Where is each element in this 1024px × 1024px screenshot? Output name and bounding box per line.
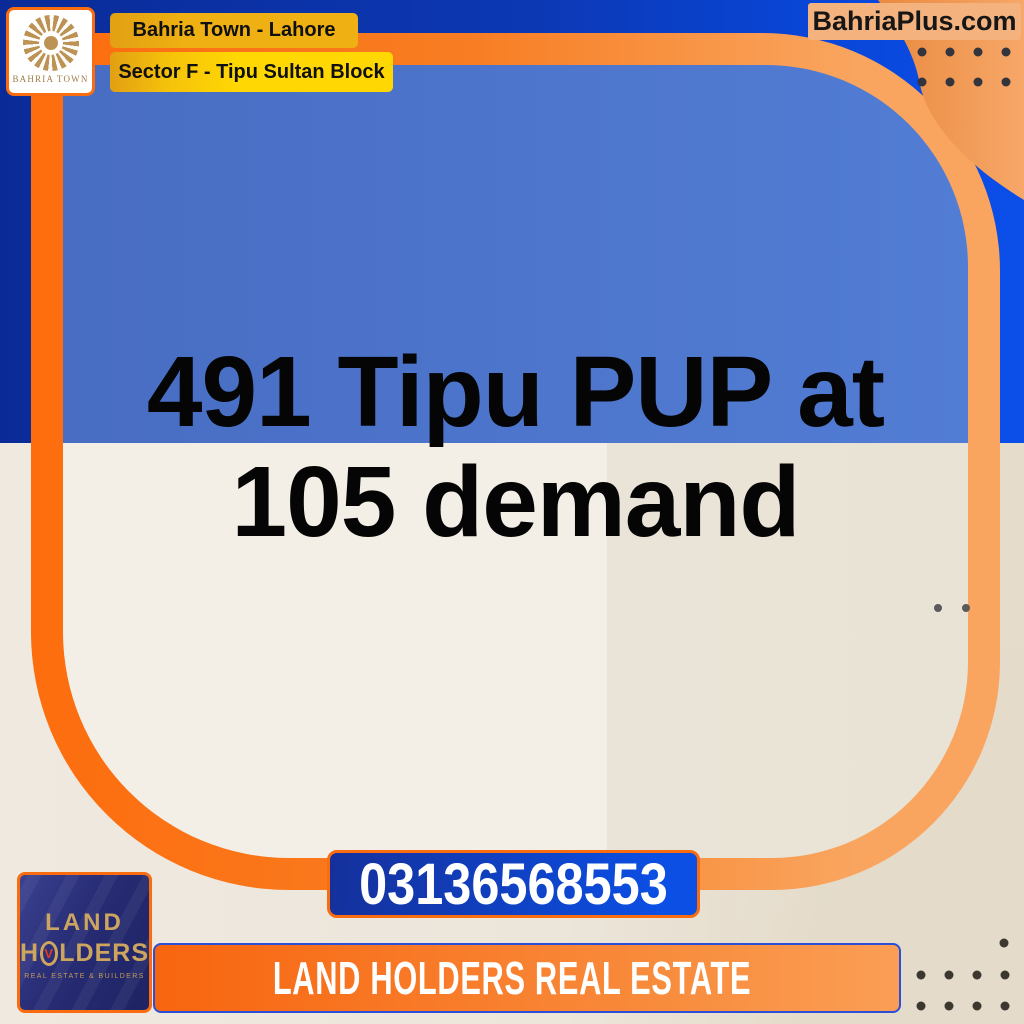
emblem-center-dot [44, 36, 58, 50]
holders-prefix: H [20, 939, 39, 968]
location-badge-primary: Bahria Town - Lahore [110, 13, 358, 48]
bahria-logo-caption: BAHRIA TOWN [9, 74, 92, 84]
holders-o-mark-icon: V [40, 941, 58, 966]
phone-number: 03136568553 [359, 851, 668, 918]
land-holders-logo: LAND H V LDERS REAL ESTATE & BUILDERS [17, 872, 152, 1013]
logo-word-holders: H V LDERS [20, 939, 149, 968]
headline-line-1: 491 Tipu PUP at [63, 337, 968, 447]
real-estate-poster: 491 Tipu PUP at 105 demand BAHR [0, 0, 1024, 1024]
agency-banner: LAND HOLDERS REAL ESTATE [153, 943, 901, 1013]
location-badge-secondary: Sector F - Tipu Sultan Block [110, 52, 393, 92]
frame-inner-panel: 491 Tipu PUP at 105 demand [63, 65, 968, 858]
listing-headline: 491 Tipu PUP at 105 demand [63, 337, 968, 557]
bahria-emblem-icon [23, 15, 79, 71]
agency-banner-text: LAND HOLDERS REAL ESTATE [273, 951, 751, 1005]
website-link[interactable]: BahriaPlus.com [808, 3, 1021, 40]
phone-button[interactable]: 03136568553 [327, 850, 700, 918]
logo-word-land: LAND [20, 909, 149, 937]
bahria-town-logo: BAHRIA TOWN [6, 7, 95, 96]
agency-tagline: REAL ESTATE & BUILDERS [20, 973, 149, 980]
headline-line-2: 105 demand [63, 447, 968, 557]
holders-suffix: LDERS [59, 939, 149, 968]
o-mark-v-glyph: V [44, 945, 54, 960]
